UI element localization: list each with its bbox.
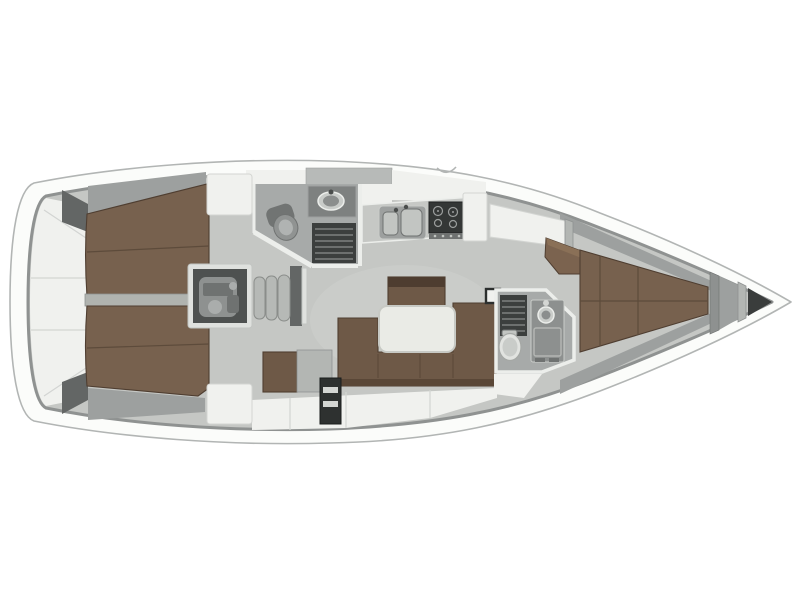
companionway-step [278,275,290,321]
faucet [394,208,398,212]
engine-detail [227,295,239,313]
sink-bowl [323,196,339,207]
stove-knob [434,235,437,238]
side-seat [263,352,297,392]
cabin-locker [207,384,252,424]
stove [429,202,463,233]
sink-bowl [542,311,551,320]
engine-compartment [188,264,252,328]
entry-bulkhead [290,266,302,326]
galley-cabinet [463,193,487,241]
stove-knob [458,235,461,238]
engine-cap [229,282,237,290]
toilet-seat [503,338,518,357]
bow-bulkhead [710,272,719,334]
storage-island-top [388,277,445,287]
cabin-locker [207,174,252,215]
faucet [404,205,408,209]
lazarette-panel [30,198,86,406]
settee-front [338,379,496,386]
sink-basin-left [383,212,398,235]
cabin-divider-wall [85,294,197,306]
engine-pulley [208,300,222,314]
bow-bulkhead [738,282,746,322]
engine-detail [203,283,233,296]
burner-center [437,210,439,212]
lazarette [30,190,88,414]
entry-jamb [302,268,307,324]
locker-slat [323,387,338,393]
shower-mixer [543,300,549,306]
burner-center [452,211,454,213]
side-deck-top [246,170,306,186]
yacht-floorplan: Sailing yacht interior floor plan, top-d… [0,0,800,600]
side-deck-top [362,184,392,205]
console-vent [535,358,545,362]
faucet [329,190,334,195]
companionway-hatch [306,168,392,186]
companionway-step [266,276,277,320]
salon-table [379,306,455,352]
yacht-floorplan-page: Sailing yacht interior floor plan, top-d… [0,0,800,600]
sink-basin-right [401,209,422,236]
locker-slat [323,401,338,407]
stove-knob [450,235,453,238]
console-vent [549,358,559,362]
companionway-step [254,277,265,319]
stove-knob [442,235,445,238]
